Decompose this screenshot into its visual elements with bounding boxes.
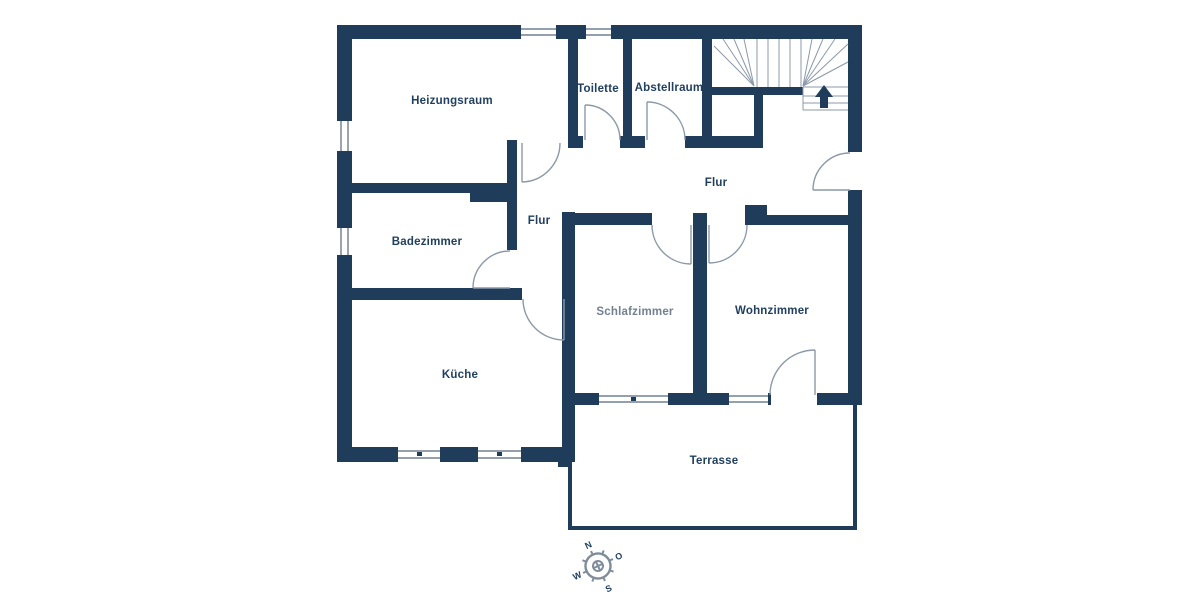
room-label-flur-small: Flur (528, 215, 551, 227)
room-label-abstellraum: Abstellraum (635, 82, 704, 94)
room-label-toilette: Toilette (577, 83, 619, 95)
room-label-flur-main: Flur (705, 177, 728, 189)
door-terrasse (770, 350, 815, 395)
room-label-badezimmer: Badezimmer (392, 236, 462, 248)
compass-south-label: S (604, 583, 614, 595)
compass-spokes (576, 544, 620, 588)
compass-east-label: O (614, 550, 625, 562)
stairs-up-arrow-icon (815, 85, 833, 108)
room-label-wohnzimmer: Wohnzimmer (735, 305, 809, 317)
compass-north-label: N (583, 539, 593, 551)
doors (473, 102, 850, 395)
room-label-kueche: Küche (442, 369, 478, 381)
door-abstellraum (647, 102, 685, 140)
compass-rose: N O S W (561, 529, 634, 600)
room-label-heizungsraum: Heizungsraum (411, 95, 493, 107)
door-wohnzimmer (709, 225, 747, 263)
terrace-outline (558, 405, 857, 530)
floorplan-canvas: N O S W Heizungsraum Toilette Abstellrau… (0, 0, 1200, 600)
door-kueche (523, 299, 564, 340)
compass-west-label: W (571, 569, 583, 582)
door-toilette (585, 105, 620, 140)
door-entrance (813, 153, 850, 190)
door-heizungsraum (522, 143, 560, 182)
room-label-schlafzimmer: Schlafzimmer (596, 306, 673, 318)
room-label-terrasse: Terrasse (690, 455, 739, 467)
staircase (714, 39, 848, 110)
door-schlafzimmer (652, 225, 691, 264)
door-badezimmer (473, 251, 510, 288)
